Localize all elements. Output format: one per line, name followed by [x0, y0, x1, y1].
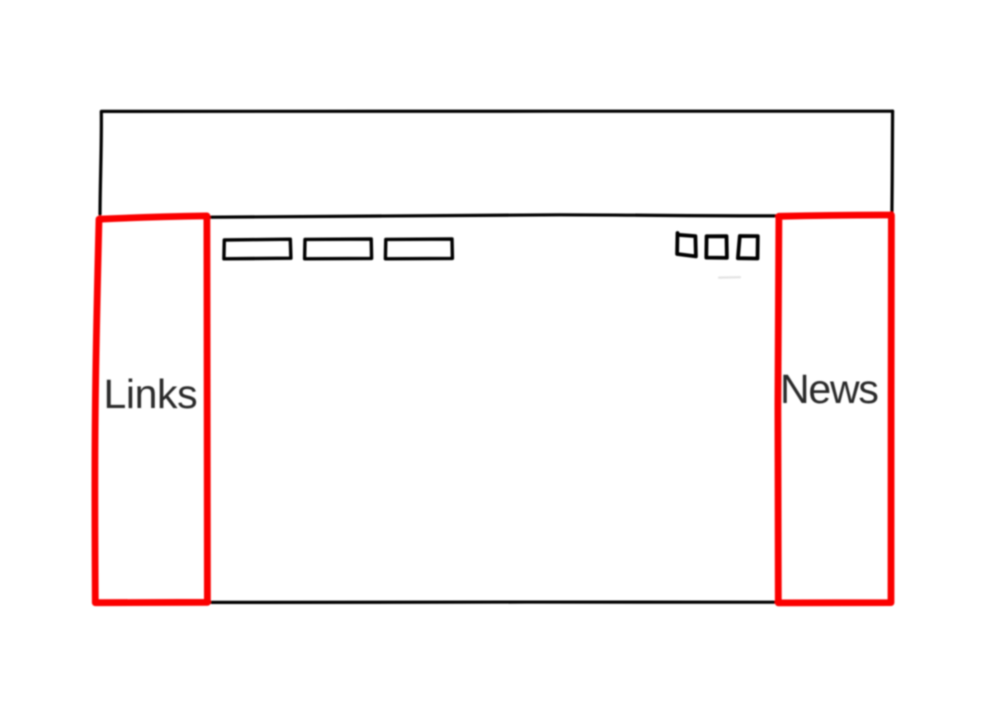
svg-text:News: News: [780, 366, 878, 412]
svg-text:Links: Links: [104, 371, 198, 417]
